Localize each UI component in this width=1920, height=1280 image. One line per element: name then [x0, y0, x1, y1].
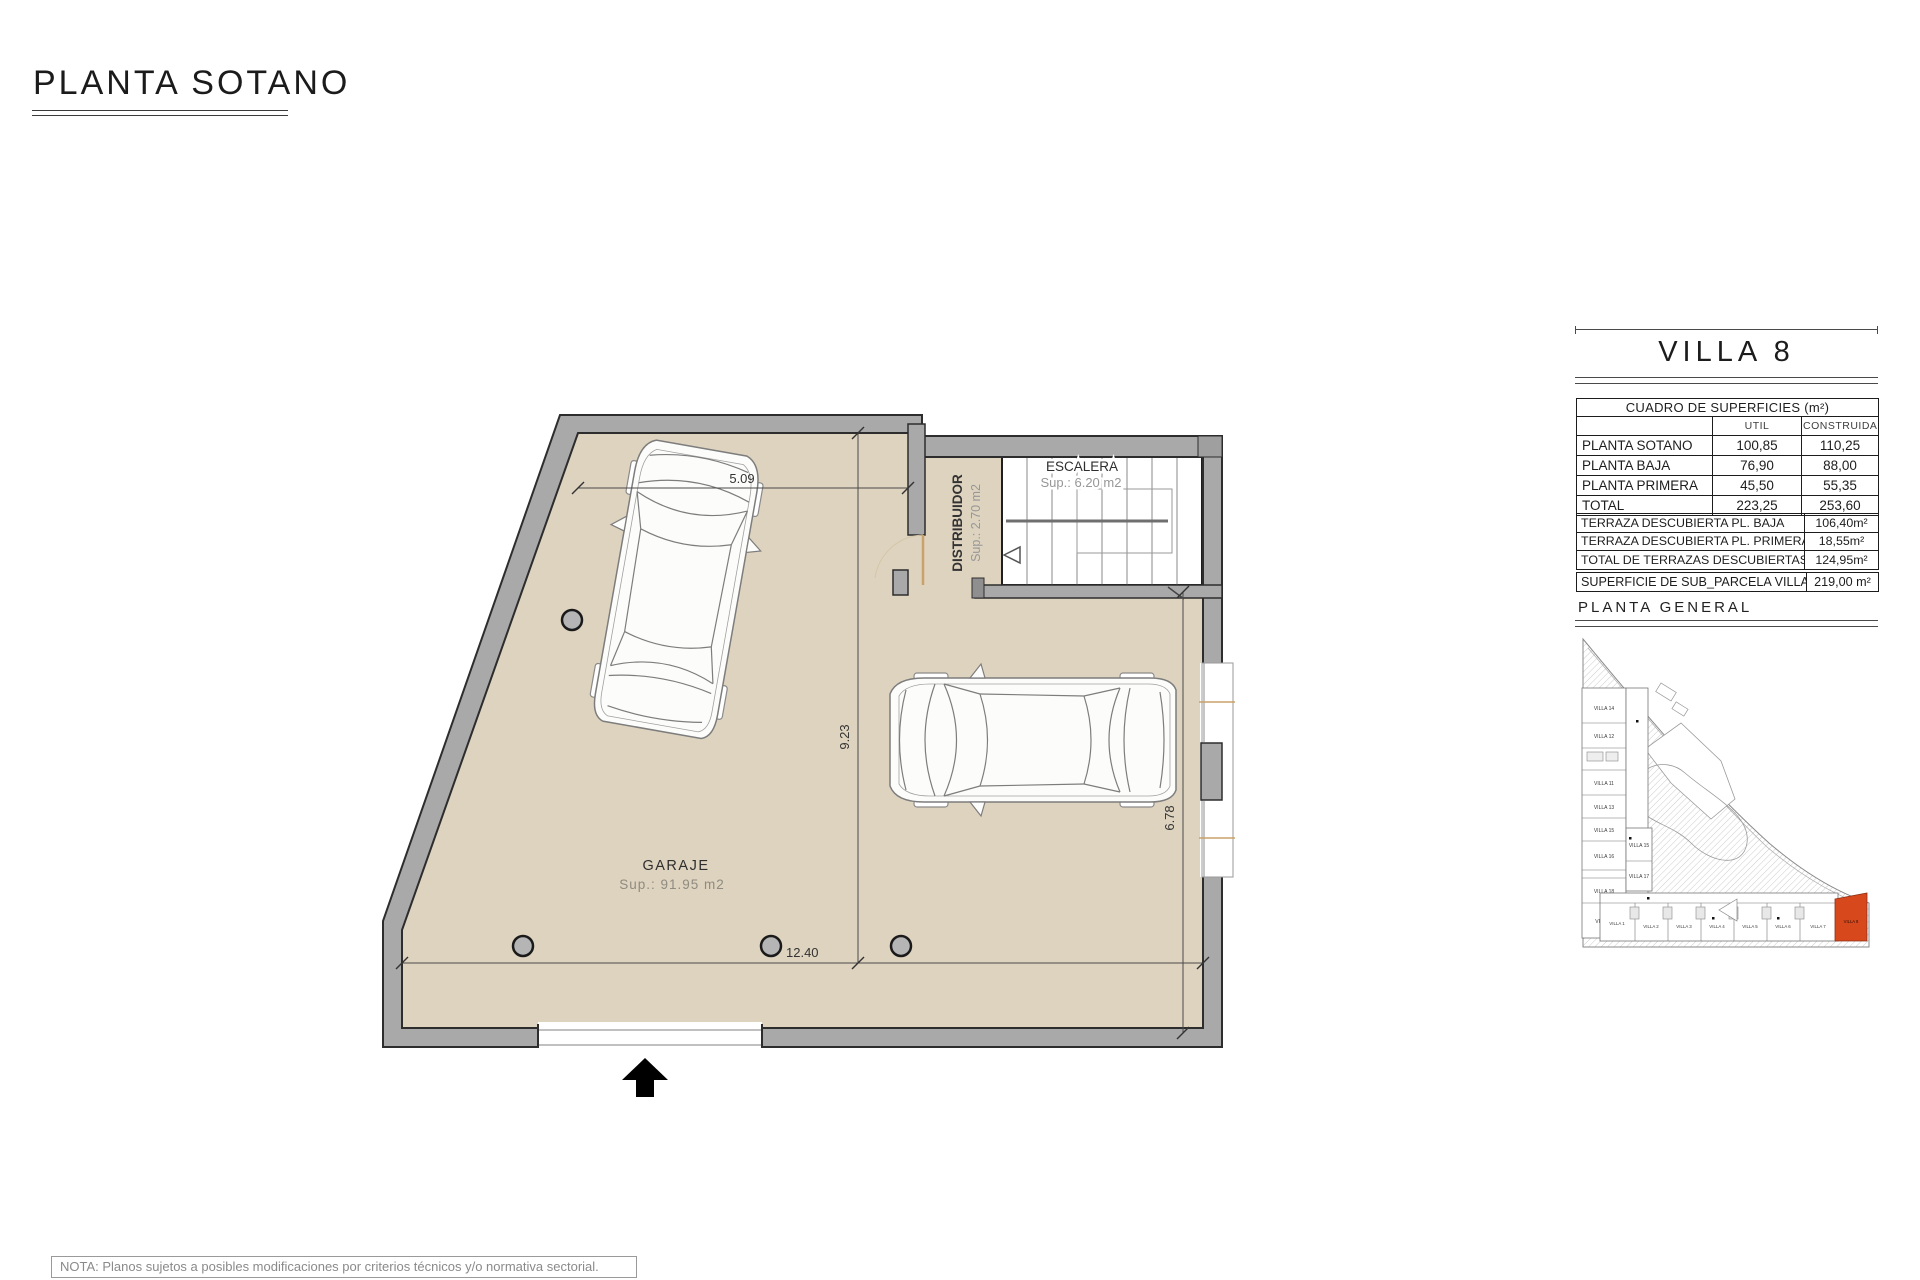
note-box: NOTA: Planos sujetos a posibles modifica… — [51, 1256, 637, 1278]
surfaces-col-construida: CONSTRUIDA — [1802, 417, 1879, 436]
planta-general-title: PLANTA GENERAL — [1578, 599, 1752, 616]
table-row: TERRAZA DESCUBIERTA PL. BAJA 106,40m² — [1577, 514, 1879, 533]
site-highlight-villa8: VILLA 8 — [1835, 893, 1867, 941]
garage-area-label: Sup.: 91.95 m2 — [619, 877, 725, 892]
site-villa-label: VILLA 16 — [1594, 854, 1615, 860]
dim-bottom: 12.40 — [786, 945, 819, 960]
distribuidor-area-label: Sup.: 2.70 m2 — [969, 484, 983, 562]
distribuidor-room-label: DISTRIBUIDOR — [950, 474, 965, 572]
stair-bottom-wall — [975, 585, 1222, 598]
table-row: PLANTA BAJA 76,90 88,00 — [1577, 456, 1879, 476]
garage-door-opening — [538, 1022, 762, 1052]
planta-general-underline — [1575, 620, 1878, 627]
surfaces-col-empty — [1577, 417, 1713, 436]
terraces-table: TERRAZA DESCUBIERTA PL. BAJA 106,40m² TE… — [1576, 513, 1879, 570]
note-text: NOTA: Planos sujetos a posibles modifica… — [60, 1259, 599, 1274]
stairs-room-label: ESCALERA — [1046, 459, 1118, 474]
table-row: PLANTA PRIMERA 45,50 55,35 — [1577, 476, 1879, 496]
site-villa-label: VILLA 14 — [1594, 706, 1615, 712]
garage-room-label: GARAJE — [642, 858, 709, 874]
site-villa-label: VILLA 13 — [1594, 805, 1615, 811]
site-bottom-villas: VILLA 1 VILLA 2 VILLA 3 VILLA 4 VILLA 5 … — [1600, 893, 1838, 941]
right-wall-windows — [1199, 663, 1235, 877]
site-plan: VILLA 14 VILLA 12 VILLA 11 VILLA 13 VILL… — [1573, 631, 1878, 956]
entrance-arrow-icon — [622, 1058, 668, 1097]
site-villa-label: VILLA 17 — [1629, 874, 1650, 880]
corner-pier — [1198, 436, 1222, 457]
site-villa-label: VILLA 12 — [1594, 734, 1615, 740]
site-villa-label: VILLA 5 — [1742, 924, 1758, 929]
dim-right: 6.78 — [1162, 805, 1177, 830]
site-villa-label: VILLA 11 — [1594, 781, 1614, 787]
table-row: SUPERFICIE DE SUB_PARCELA VILLA 8 219,00… — [1577, 573, 1879, 592]
villa-title: VILLA 8 — [1575, 336, 1878, 369]
site-villa-label: VILLA 7 — [1810, 924, 1826, 929]
dim-top: 5.09 — [729, 471, 754, 486]
surfaces-table-title: CUADRO DE SUPERFICIES (m²) — [1577, 399, 1879, 417]
dim-left: 9.23 — [837, 724, 852, 749]
site-villa-label: VILLA 4 — [1709, 924, 1725, 929]
stairs-area-label: Sup.: 6.20 m2 — [1041, 475, 1122, 490]
parcel-table: SUPERFICIE DE SUB_PARCELA VILLA 8 219,00… — [1576, 572, 1879, 592]
floor-plan-drawing: 5.09 9.23 12.40 6.78 GARAJE Sup.: 91.95 … — [0, 0, 1300, 1280]
site-villa-label-highlight: VILLA 8 — [1844, 919, 1859, 924]
panel-top-rule — [1575, 329, 1878, 330]
wall-stub — [972, 578, 984, 598]
site-villa-label: VILLA 15 — [1629, 843, 1650, 849]
surfaces-col-util: UTIL — [1713, 417, 1802, 436]
site-villa-label: VILLA 6 — [1775, 924, 1791, 929]
surfaces-table: CUADRO DE SUPERFICIES (m²) UTIL CONSTRUI… — [1576, 398, 1879, 516]
villa-title-underline — [1575, 377, 1878, 384]
site-villa-label: VILLA 2 — [1643, 924, 1659, 929]
table-row: PLANTA SOTANO 100,85 110,25 — [1577, 436, 1879, 456]
table-row: TERRAZA DESCUBIERTA PL. PRIMERA 18,55m² — [1577, 532, 1879, 551]
site-villa-label: VILLA 1 — [1609, 921, 1625, 926]
table-row: TOTAL DE TERRAZAS DESCUBIERTAS 124,95m² — [1577, 551, 1879, 570]
window-pier — [1201, 743, 1222, 800]
site-villa-label: VILLA 15 — [1594, 828, 1615, 834]
site-villa-label: VILLA 3 — [1676, 924, 1692, 929]
car-2 — [890, 664, 1176, 816]
